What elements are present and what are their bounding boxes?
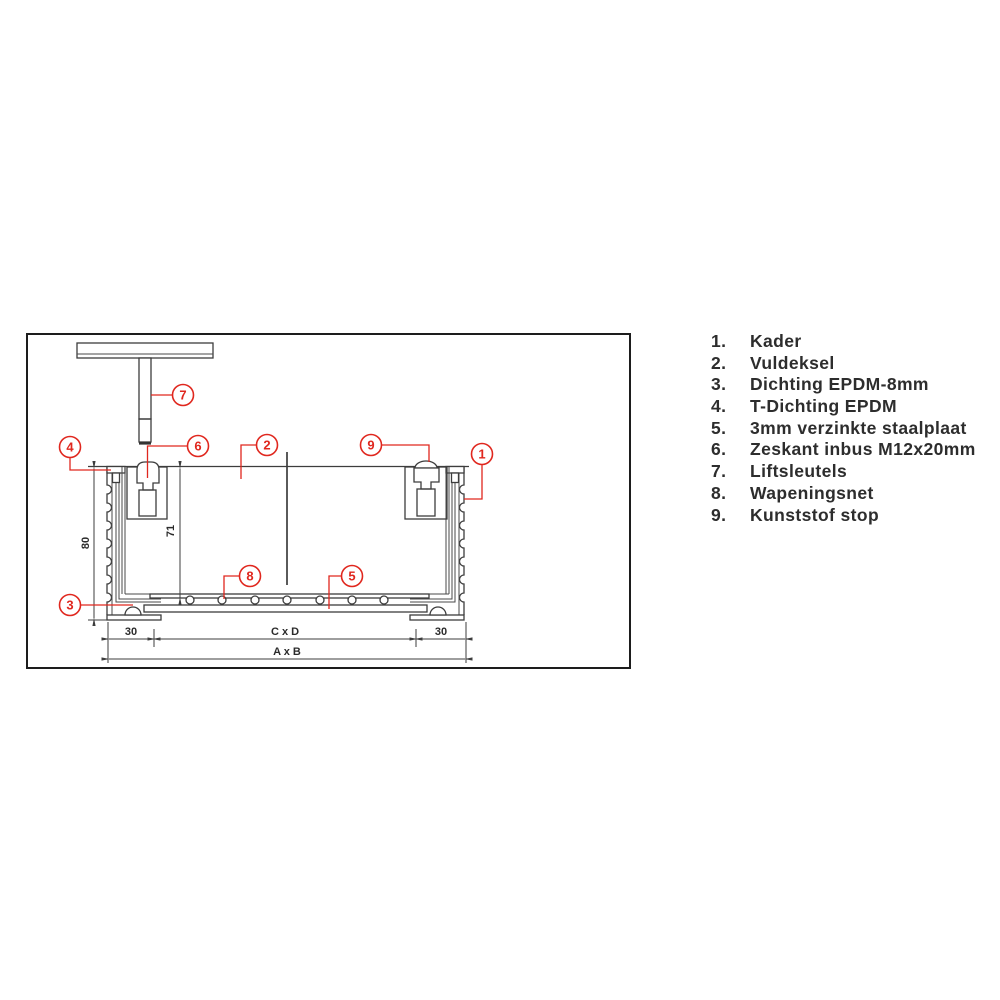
- key-recess-right: [414, 468, 439, 489]
- svg-text:3: 3: [66, 598, 73, 613]
- legend-item-label: Liftsleutels: [750, 461, 847, 483]
- steel-plate: [144, 605, 427, 612]
- diagram-panel: 80 71 30 C x D 30 A x B 7: [26, 333, 631, 669]
- callout-2: 2: [241, 435, 278, 480]
- callout-3: 3: [60, 595, 134, 616]
- lift-key-tip-end: [139, 442, 151, 445]
- legend-item-label: Kader: [750, 331, 802, 353]
- legend-item-number: 3.: [711, 374, 750, 396]
- legend-item-number: 2.: [711, 353, 750, 375]
- legend-item-label: Dichting EPDM-8mm: [750, 374, 929, 396]
- svg-text:7: 7: [179, 388, 186, 403]
- svg-text:4: 4: [66, 440, 74, 455]
- legend-item: 5. 3mm verzinkte staalplaat: [711, 418, 976, 440]
- legend-item-number: 1.: [711, 331, 750, 353]
- round-gasket-left: [125, 607, 141, 615]
- callout-7: 7: [151, 385, 194, 406]
- legend-item: 3. Dichting EPDM-8mm: [711, 374, 976, 396]
- callout-1: 1: [464, 444, 493, 500]
- legend-item: 6. Zeskant inbus M12x20mm: [711, 439, 976, 461]
- bolt-socket-right: [405, 461, 447, 519]
- legend-item-label: Wapeningsnet: [750, 483, 874, 505]
- dim-label-axb: A x B: [273, 646, 301, 658]
- legend-item-number: 7.: [711, 461, 750, 483]
- hex-bolt-right: [417, 489, 435, 516]
- lift-key-handle: [77, 343, 213, 358]
- svg-text:5: 5: [348, 569, 355, 584]
- legend-item-label: Kunststof stop: [750, 505, 879, 527]
- lift-key-hex-tip: [139, 419, 151, 442]
- legend-item: 1. Kader: [711, 331, 976, 353]
- plastic-stop-cap: [415, 461, 437, 468]
- legend-item-number: 4.: [711, 396, 750, 418]
- callouts: 7 6 4 2 9: [60, 385, 493, 616]
- dim-label-30-right: 30: [435, 626, 447, 638]
- parts-legend: 1. Kader 2. Vuldeksel 3. Dichting EPDM-8…: [711, 331, 976, 526]
- dim-label-30-left: 30: [125, 626, 137, 638]
- legend-item-number: 8.: [711, 483, 750, 505]
- legend-item: 7. Liftsleutels: [711, 461, 976, 483]
- svg-text:8: 8: [246, 569, 253, 584]
- legend-item-number: 6.: [711, 439, 750, 461]
- legend-item: 8. Wapeningsnet: [711, 483, 976, 505]
- callout-9: 9: [361, 435, 430, 463]
- cross-section-drawing: 80 71 30 C x D 30 A x B 7: [28, 335, 629, 667]
- dimensions: 80 71 30 C x D 30 A x B: [80, 469, 466, 664]
- legend-item: 9. Kunststof stop: [711, 505, 976, 527]
- legend-item: 4. T-Dichting EPDM: [711, 396, 976, 418]
- legend-item-number: 5.: [711, 418, 750, 440]
- dim-label-71: 71: [165, 525, 177, 537]
- legend-item-number: 9.: [711, 505, 750, 527]
- svg-text:6: 6: [194, 439, 201, 454]
- page: { "diagram": { "callouts": { "c1": "1", …: [0, 0, 1000, 1000]
- cover-left-edge: [122, 467, 125, 594]
- bottom-flange-left: [107, 615, 161, 620]
- legend-item-label: Zeskant inbus M12x20mm: [750, 439, 976, 461]
- hex-bolt-left: [139, 490, 156, 516]
- svg-text:1: 1: [478, 447, 485, 462]
- callout-5: 5: [329, 566, 363, 610]
- lift-key-shaft: [139, 358, 151, 419]
- dim-label-80: 80: [80, 537, 92, 549]
- svg-text:2: 2: [263, 438, 270, 453]
- dim-label-cxd: C x D: [271, 626, 299, 638]
- legend-item-label: T-Dichting EPDM: [750, 396, 897, 418]
- svg-text:9: 9: [367, 438, 374, 453]
- legend-item-label: 3mm verzinkte staalplaat: [750, 418, 967, 440]
- legend-item-label: Vuldeksel: [750, 353, 835, 375]
- legend-item: 2. Vuldeksel: [711, 353, 976, 375]
- callout-4: 4: [60, 437, 112, 471]
